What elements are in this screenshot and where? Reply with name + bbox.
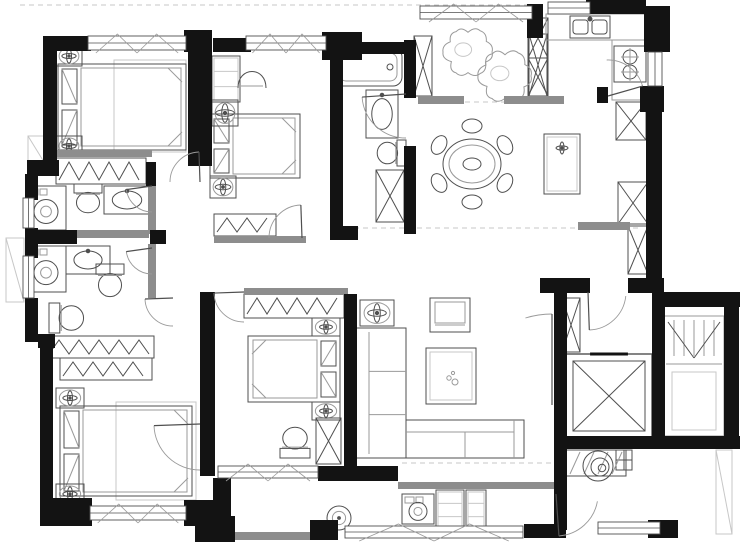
stairs [664, 316, 724, 436]
door-bath-2 [362, 94, 406, 138]
toilet-master-bath [280, 427, 310, 458]
nightstand-master-bottom [312, 402, 340, 420]
door-bedroom-3 [154, 424, 200, 470]
door-dressing [145, 298, 173, 326]
window-bedroom-1 [88, 34, 186, 53]
window-kitchen-right [648, 52, 662, 86]
bench-lobby [564, 450, 626, 476]
kitchen-sink [570, 16, 610, 38]
window-balcony-top [420, 4, 532, 22]
window-balcony-bottom [345, 524, 523, 541]
exterior-ledge-left-upper [28, 136, 44, 162]
exterior-ledge-left-lower [6, 238, 24, 302]
window-master-balcony [218, 464, 318, 481]
wardrobe-bedroom-2 [214, 214, 276, 236]
dining-table [428, 119, 516, 209]
nightstand-master-top [312, 318, 340, 336]
elevator [566, 354, 652, 438]
kitchen-counter-top [546, 14, 646, 40]
wardrobe-bedroom-1 [56, 158, 146, 184]
rug-bedroom-3 [116, 402, 196, 500]
floor-plan-svg [0, 0, 740, 550]
toilet-dressing [49, 303, 84, 333]
bed-bedroom-3 [60, 406, 192, 496]
wardrobe-dressing-bottom [60, 358, 152, 380]
hall-cabinet [628, 226, 648, 274]
window-lobby-bottom [598, 522, 660, 534]
door-living-lobby [525, 314, 552, 405]
window-bedroom-2 [246, 34, 326, 53]
side-table-living [360, 300, 394, 326]
sink-bath-a [104, 186, 150, 214]
floor-plan [0, 0, 740, 550]
wardrobe-master [244, 294, 344, 318]
window-kitchen-top [548, 2, 590, 14]
plant-balcony-1 [443, 29, 493, 76]
toilet-bath-a [74, 184, 102, 213]
window-bedroom-3 [90, 504, 186, 523]
armchair-living [430, 298, 470, 332]
bed-master [248, 336, 340, 402]
window-bath-b [23, 256, 34, 298]
chair-bedroom-2 [238, 72, 266, 89]
wardrobe-dressing-top [46, 336, 154, 358]
nightstand-br2 [210, 176, 236, 198]
door-bedroom-2 [269, 205, 302, 238]
stove [614, 46, 646, 82]
cabinet-bath-2 [376, 170, 404, 222]
coffee-table [426, 348, 476, 404]
console-dining [544, 134, 580, 194]
balcony-column-left [414, 36, 432, 96]
door-master [214, 292, 244, 322]
plant-balcony-2 [478, 51, 532, 102]
cabinet-balcony-1 [436, 490, 464, 530]
toilet-bath-2 [377, 140, 406, 166]
cabinet-master-bath [316, 418, 341, 464]
bed-bedroom-1 [58, 64, 186, 150]
door-entry [588, 292, 626, 330]
washer-balcony [402, 494, 434, 524]
window-bath-a [23, 198, 34, 228]
nightstand-br3-top [56, 388, 84, 408]
dining-cabinet-mid [618, 182, 648, 224]
desk-bedroom-2 [212, 56, 240, 102]
sink-bath-b [66, 246, 110, 274]
exterior-ledge-right [716, 450, 732, 534]
